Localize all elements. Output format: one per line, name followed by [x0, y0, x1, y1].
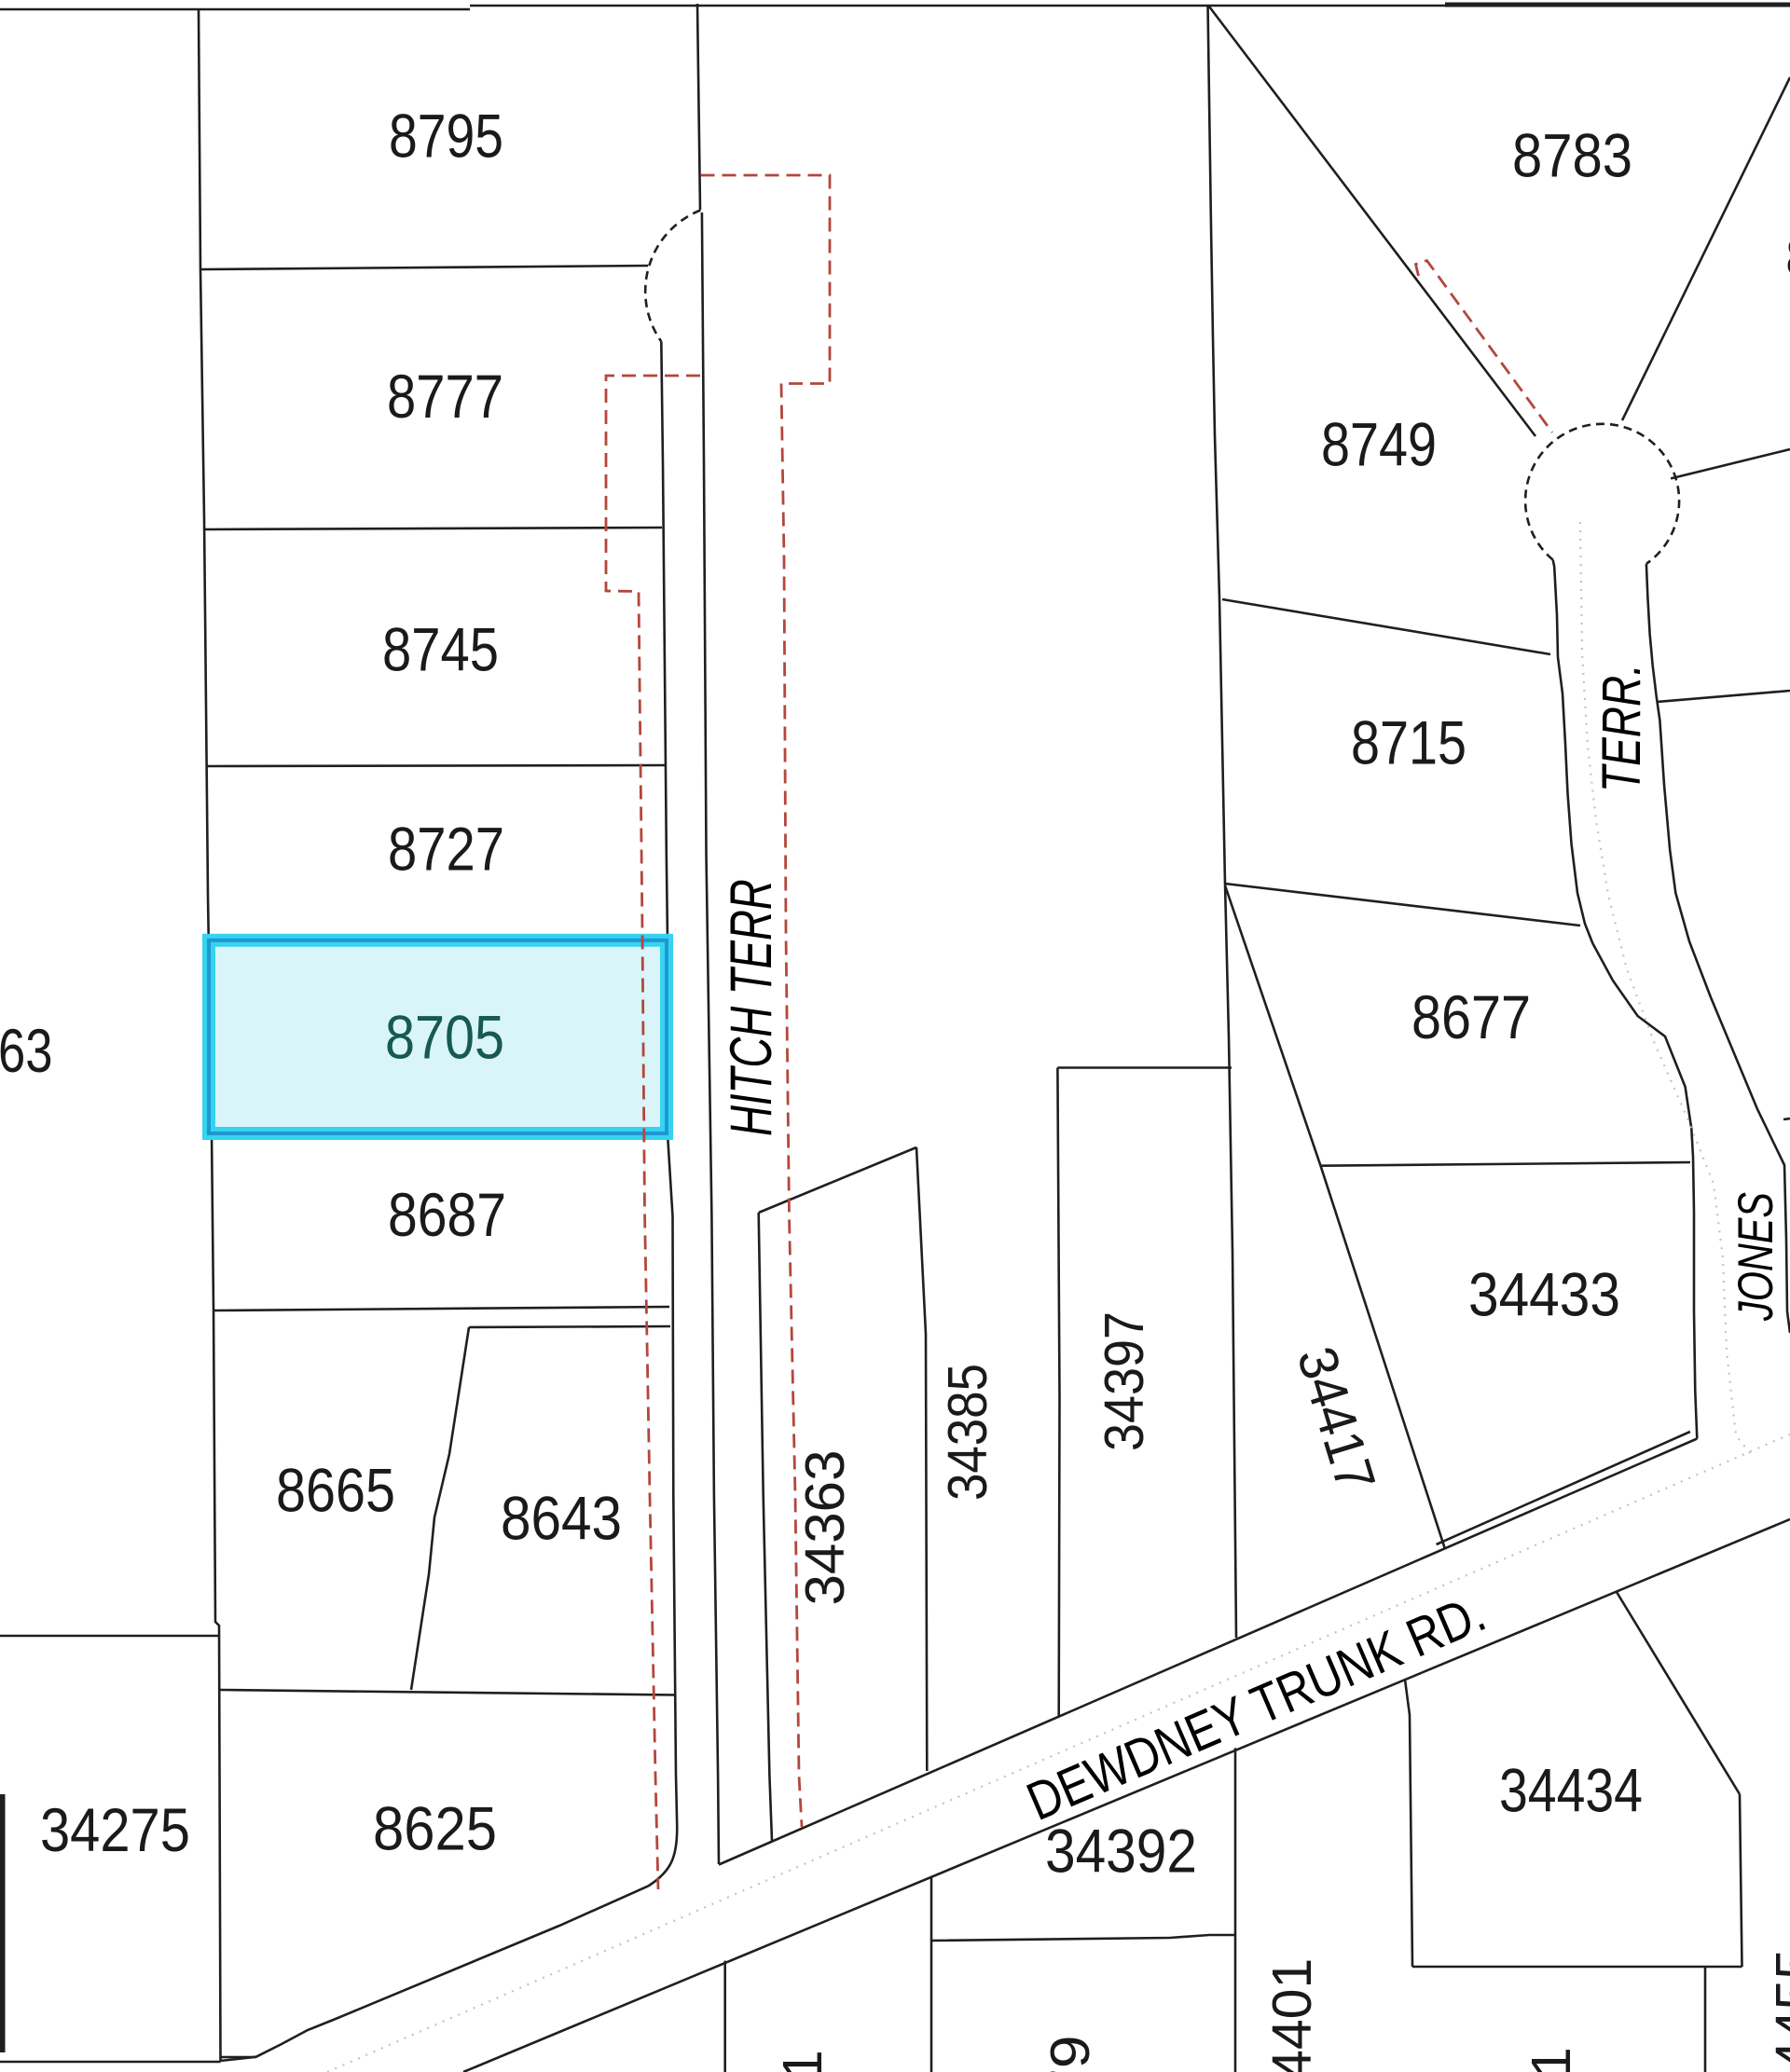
svg-text:8715: 8715	[1351, 708, 1466, 776]
svg-text:4401: 4401	[1261, 1958, 1323, 2072]
svg-text:8745: 8745	[382, 615, 499, 683]
svg-text:79: 79	[1040, 2035, 1101, 2072]
svg-text:34363: 34363	[793, 1450, 855, 1606]
svg-text:63: 63	[0, 1016, 52, 1085]
svg-text:8705: 8705	[385, 1004, 504, 1073]
svg-text:8677: 8677	[1411, 983, 1531, 1052]
svg-text:8749: 8749	[1321, 410, 1437, 478]
svg-text:TERR.: TERR.	[1592, 664, 1652, 792]
svg-text:8783: 8783	[1512, 122, 1632, 190]
svg-text:8687: 8687	[388, 1181, 506, 1250]
svg-text:34455: 34455	[1765, 1949, 1790, 2072]
svg-text:34392: 34392	[1045, 1818, 1197, 1886]
svg-text:8777: 8777	[387, 363, 503, 431]
svg-text:8795: 8795	[389, 102, 503, 171]
svg-text:HITCH TERR: HITCH TERR	[718, 879, 784, 1136]
svg-text:8625: 8625	[373, 1795, 497, 1863]
svg-text:8727: 8727	[388, 815, 504, 883]
svg-text:34275: 34275	[40, 1797, 190, 1865]
svg-text:JONES: JONES	[1728, 1192, 1783, 1322]
svg-text:87: 87	[1785, 226, 1790, 288]
svg-text:34433: 34433	[1468, 1261, 1620, 1329]
svg-text:34385: 34385	[936, 1364, 998, 1501]
svg-text:1: 1	[772, 2050, 833, 2072]
svg-text:8643: 8643	[501, 1485, 622, 1553]
svg-text:34397: 34397	[1094, 1311, 1155, 1451]
svg-text:1: 1	[1521, 2047, 1582, 2072]
svg-text:34434: 34434	[1499, 1756, 1643, 1825]
svg-text:8665: 8665	[276, 1457, 395, 1526]
